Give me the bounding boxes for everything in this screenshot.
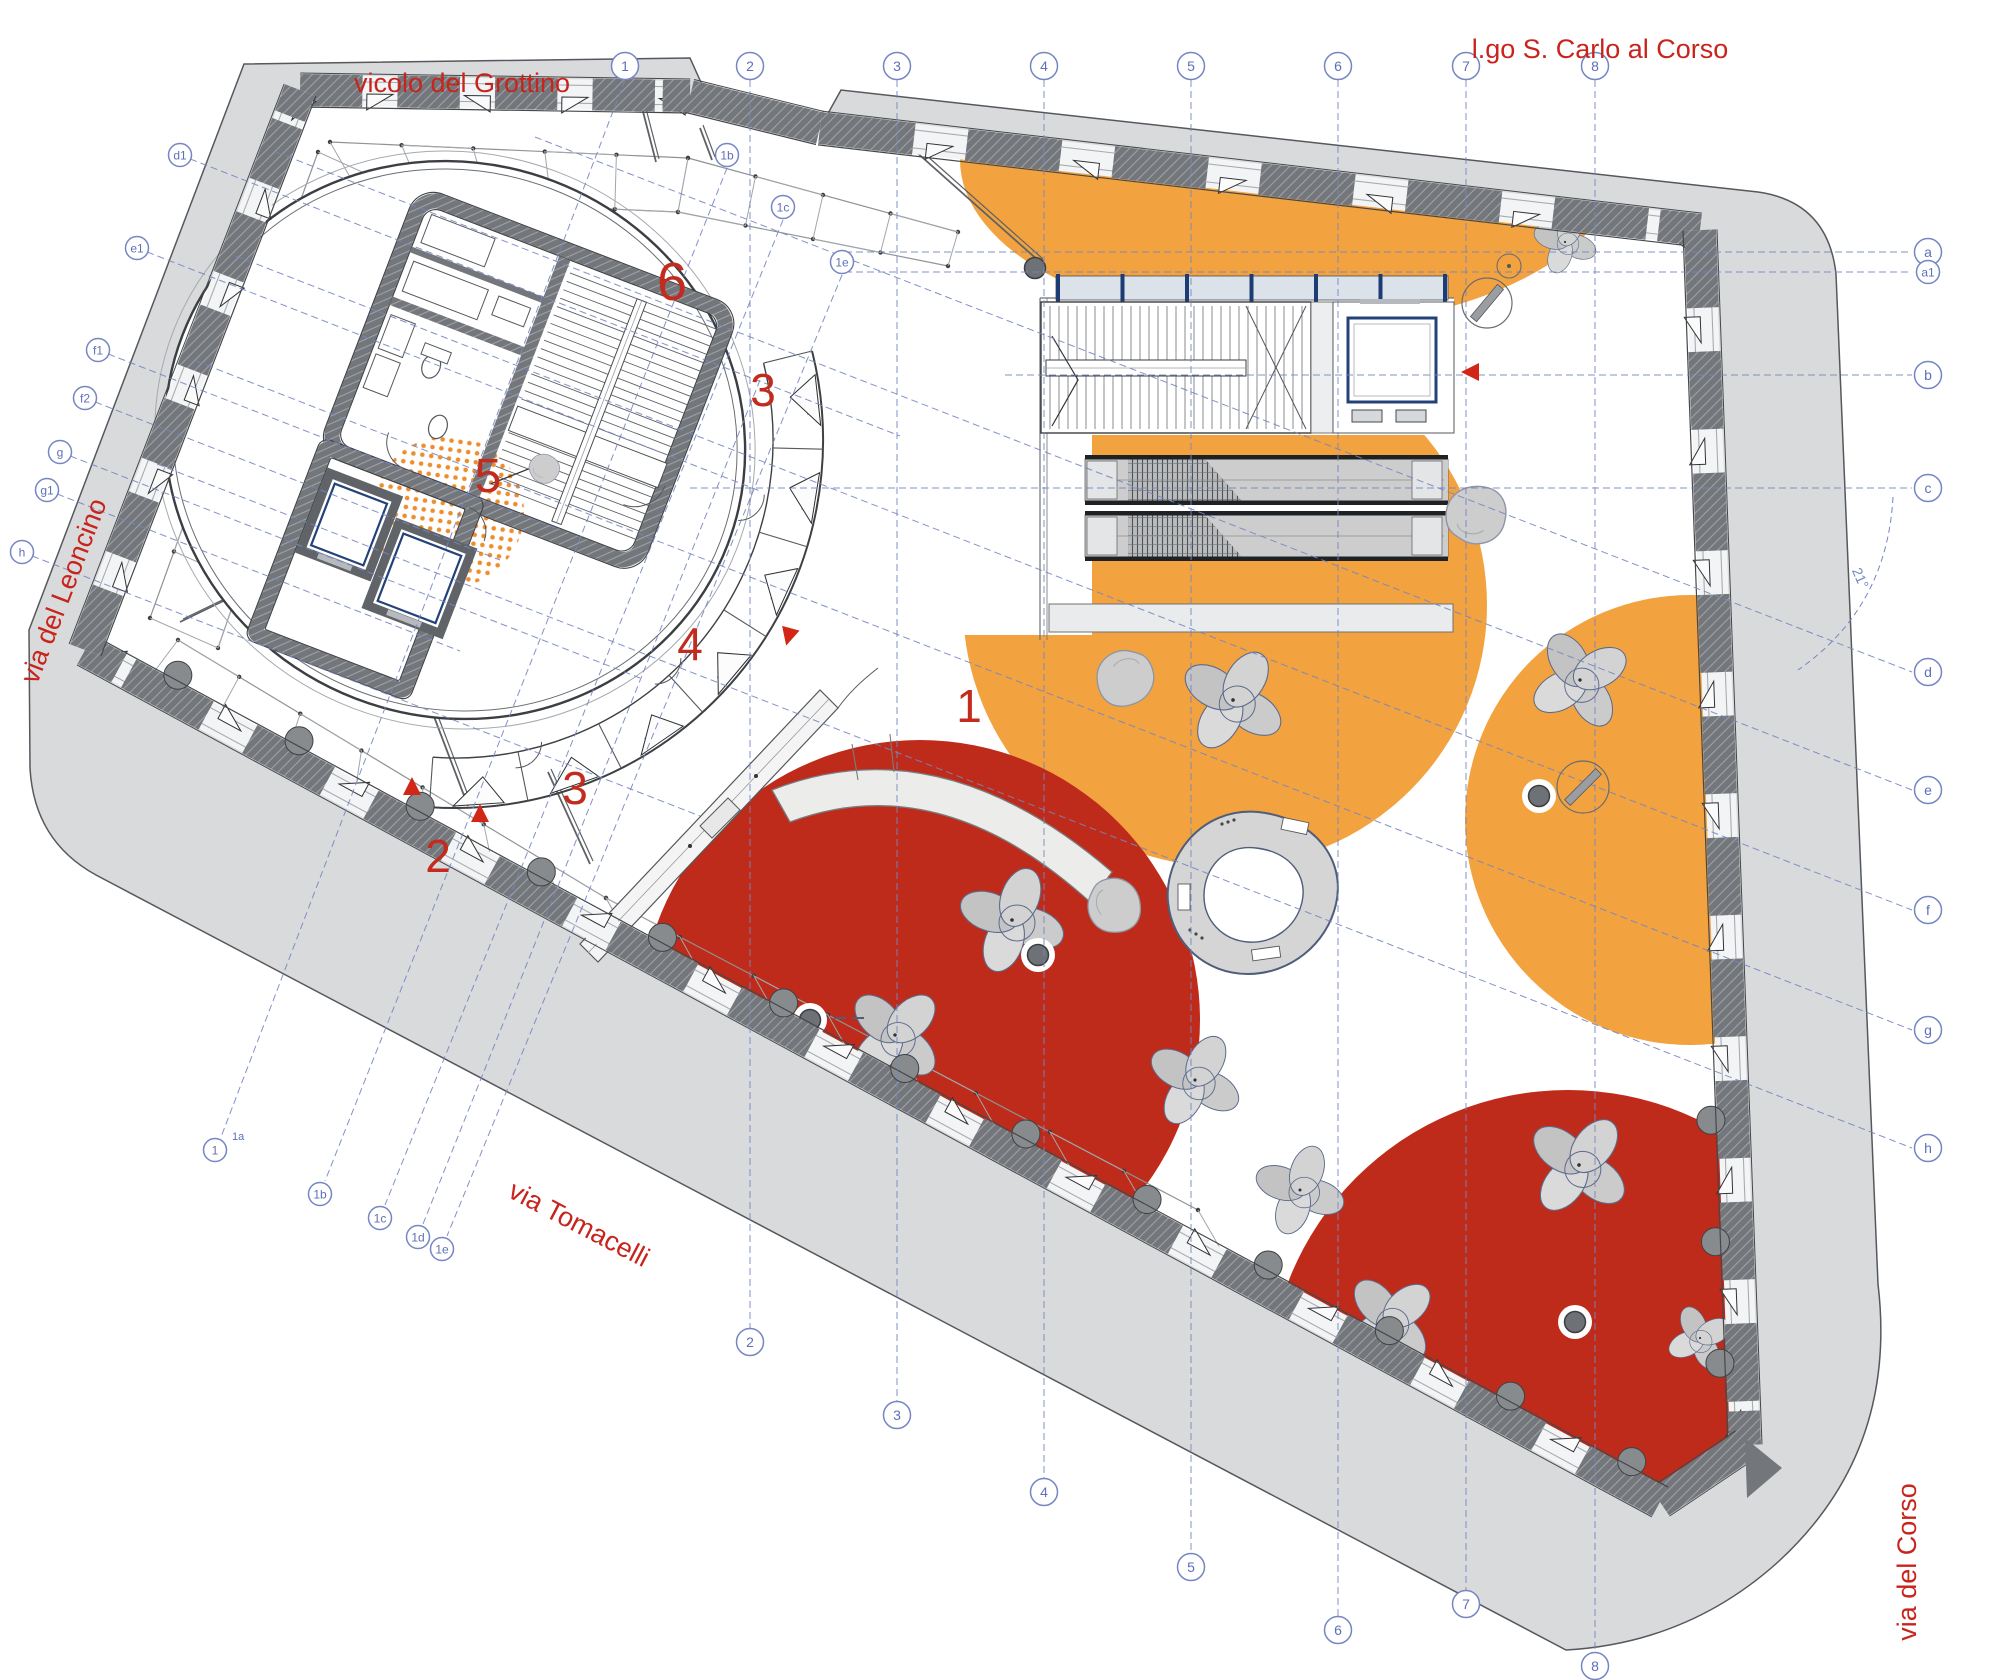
wall-pier	[1553, 213, 1647, 224]
grid-bubble-label: c	[1925, 480, 1932, 496]
escalator-landing-plate	[1412, 461, 1442, 499]
grid-bubble-label: g	[1924, 1022, 1932, 1038]
street-label-via-del-corso: via del Corso	[1892, 1483, 1922, 1641]
escalator-parapet	[1049, 604, 1453, 632]
grid-bubble-label: d	[1924, 664, 1932, 680]
wall-pier	[228, 217, 251, 277]
grid-bubble-label: 1	[621, 58, 629, 74]
wall-pier	[1260, 179, 1354, 190]
zone-number-label: 4	[677, 618, 703, 670]
grid-bubble-label: 5	[1187, 58, 1195, 74]
flower-center-dot	[1564, 241, 1566, 243]
wall-pier	[1741, 1324, 1744, 1402]
counterweight	[1396, 410, 1426, 422]
wall-pier	[1113, 162, 1207, 173]
glass-separator	[1121, 274, 1125, 302]
pilaster-bump	[1706, 1349, 1734, 1377]
grid-bubble-label: 1e	[835, 255, 849, 269]
glass-separator	[1443, 274, 1447, 302]
glass-separator	[1379, 274, 1383, 302]
grid-bubble-label: d1	[173, 148, 187, 162]
elevator-car	[1348, 318, 1436, 402]
zone-number-label: 3	[750, 364, 776, 416]
zone-number-label: 1	[956, 680, 982, 732]
pebble-outline	[1446, 486, 1506, 543]
escalator-landing-plate	[1087, 461, 1117, 499]
ramp-node	[754, 774, 758, 778]
grid-bubble-label: 3	[893, 1407, 901, 1423]
grid-bubble-label: f1	[93, 343, 103, 357]
wall-pier	[1700, 230, 1703, 308]
grid-bubble-label: h	[1924, 1140, 1932, 1156]
grid-bubble-label: g	[57, 445, 64, 459]
wall-pier	[193, 310, 216, 370]
grid-bubble-label: 3	[893, 58, 901, 74]
grid-bubble-label: 1c	[777, 200, 790, 214]
structural-column	[1529, 786, 1550, 807]
wall-pier	[820, 128, 914, 139]
grid-bubble-label: 2	[746, 1334, 754, 1350]
grid-bubble-label: 4	[1040, 1484, 1048, 1500]
elevator-door	[1360, 299, 1420, 304]
wall-pier	[1736, 1202, 1739, 1280]
wall-pier	[1705, 352, 1708, 430]
street-label-lgo-s-carlo: l.go S. Carlo al Corso	[1472, 34, 1729, 64]
grid-bubble-label: h	[19, 545, 26, 559]
grid-bubble-label: a1	[1921, 265, 1935, 279]
grid-bubble-label: 6	[1334, 1622, 1342, 1638]
grid-bubble-label: 1e	[435, 1242, 449, 1256]
counterweight	[1352, 410, 1382, 422]
street-label-vicolo-del-grottino: vicolo del Grottino	[354, 68, 570, 98]
ramp-node	[688, 844, 692, 848]
grid-bubble-label: 5	[1187, 1559, 1195, 1575]
wall-pier	[1727, 959, 1730, 1037]
pebble-seat	[1446, 486, 1506, 543]
floor-plan: 21° 1233456 123456781b1c1e234567811a1b1c…	[0, 0, 2000, 1680]
wall-pier	[1407, 196, 1501, 207]
wall-pier	[157, 404, 180, 464]
wall-pier	[264, 124, 287, 184]
wall-pier	[85, 590, 108, 650]
wall-pier	[1744, 1411, 1745, 1445]
wall-pier	[1732, 1081, 1735, 1159]
grid-bubble-label: 1b	[313, 1187, 327, 1201]
wall-pier	[1718, 716, 1721, 794]
shaft-divider	[1311, 302, 1333, 433]
flower-center-dot	[1010, 918, 1014, 922]
kiosk-dot	[1220, 822, 1223, 825]
zone-number-label: 5	[475, 450, 502, 503]
structural-column	[1565, 1312, 1586, 1333]
grid-bubble-label: 6	[1334, 58, 1342, 74]
escalator-rail	[1085, 557, 1448, 562]
zone-number-label: 3	[562, 762, 588, 814]
grid-bubble-label: 8	[1591, 1658, 1599, 1674]
street-label-via-tomacelli: via Tomacelli	[504, 1175, 655, 1273]
kiosk-hole	[1204, 848, 1303, 943]
flower-center-dot	[1298, 1188, 1301, 1191]
wall-pier	[593, 95, 655, 96]
wall-pier	[1659, 225, 1700, 230]
grid-bubble-label: a	[1924, 244, 1932, 260]
pilaster-bump	[1701, 1228, 1729, 1256]
wall-pier	[290, 90, 300, 116]
structural-column	[1028, 945, 1049, 966]
kiosk-dot	[1194, 932, 1197, 935]
wall-pier	[1723, 838, 1726, 916]
grid-bubble-label: 1d	[411, 1230, 424, 1244]
grid-bubble-label: 4	[1040, 58, 1048, 74]
grid-bubble-label: e1	[130, 241, 144, 255]
wall-pier	[1714, 595, 1717, 673]
grid-bubble-label: 1b	[720, 148, 734, 162]
escalator-rail	[1085, 455, 1448, 460]
grid-bubble-label: 2	[746, 58, 754, 74]
glass-separator	[1185, 274, 1189, 302]
kiosk-equipment	[1178, 884, 1190, 910]
grid-bubble-label: 1c	[374, 1211, 387, 1225]
wall-pier	[1709, 473, 1712, 551]
grid-bubble-label: 7	[1462, 58, 1470, 74]
escalator-rail	[1085, 501, 1448, 506]
grid-bubble-label: e	[1924, 782, 1932, 798]
pilaster-bump	[1697, 1106, 1725, 1134]
escalator-gap	[1085, 505, 1448, 511]
wall-pier	[967, 145, 1061, 156]
grid-bubble-label: f	[1926, 902, 1930, 918]
grid-bubble-label: b	[1924, 367, 1932, 383]
small-circle-dot	[1507, 264, 1511, 268]
glass-separator	[1056, 274, 1060, 302]
escalator-rail	[1085, 511, 1448, 516]
grid-bubble-label: 7	[1462, 1596, 1470, 1612]
zone-number-label: 6	[657, 252, 687, 312]
kiosk-dot	[1200, 936, 1203, 939]
angle-label: 21°	[1849, 565, 1872, 591]
glass-separator	[1314, 274, 1318, 302]
zone-number-label: 2	[425, 830, 451, 882]
grid-bubble-label: 1	[212, 1143, 219, 1157]
structural-column	[1025, 258, 1046, 279]
kiosk-dot	[1226, 820, 1229, 823]
grid-bubble-label: g1	[40, 483, 54, 497]
grid-bubble-label: f2	[80, 391, 90, 405]
plan-svg: 21° 1233456 123456781b1c1e234567811a1b1c…	[0, 0, 2000, 1680]
grid-bubble-sup-label: 1a	[232, 1131, 245, 1143]
glass-separator	[1250, 274, 1254, 302]
kiosk-dot	[1232, 818, 1235, 821]
escalator-landing-plate	[1087, 517, 1117, 555]
escalator-landing-plate	[1412, 517, 1442, 555]
